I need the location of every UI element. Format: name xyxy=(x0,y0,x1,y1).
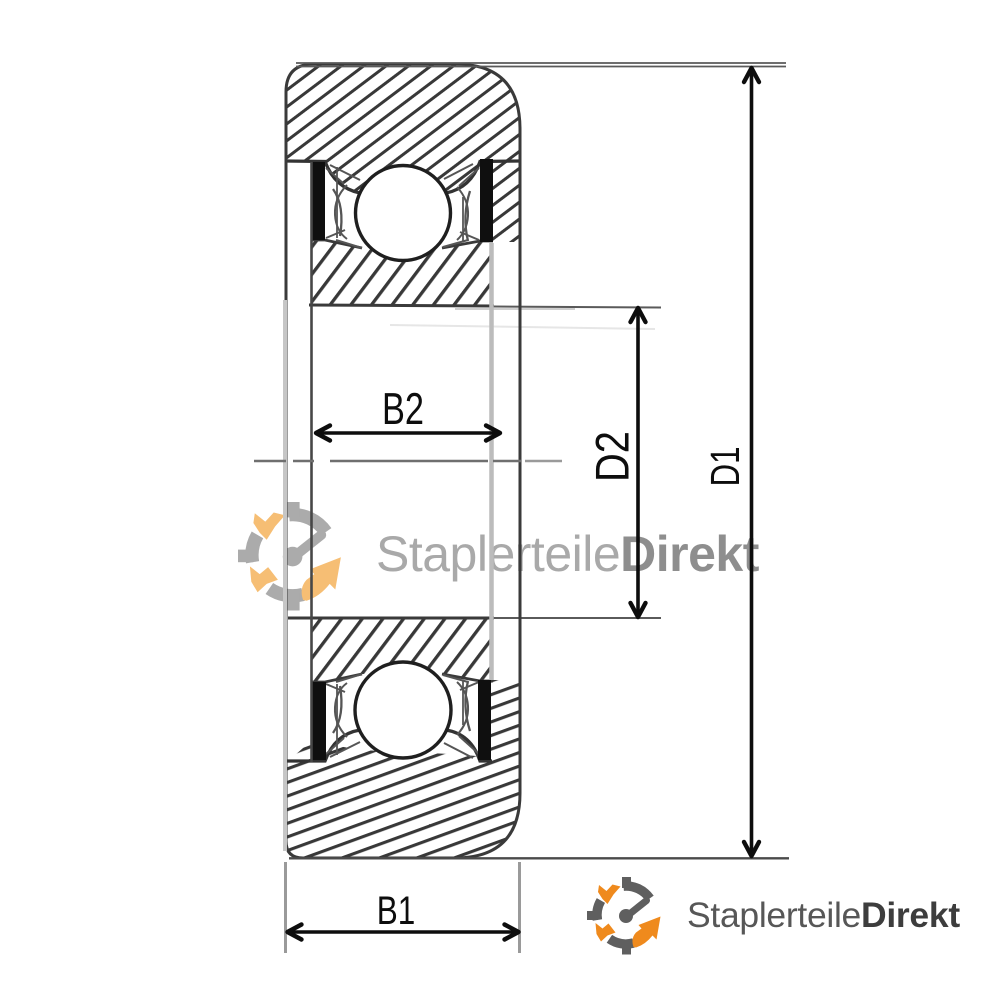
svg-text:StaplerteileDirekt: StaplerteileDirekt xyxy=(376,526,760,582)
svg-text:D2: D2 xyxy=(586,431,639,482)
svg-text:StaplerteileDirekt: StaplerteileDirekt xyxy=(687,895,960,935)
svg-text:D1: D1 xyxy=(702,447,748,487)
svg-text:B1: B1 xyxy=(377,889,416,933)
svg-text:B2: B2 xyxy=(382,385,424,434)
